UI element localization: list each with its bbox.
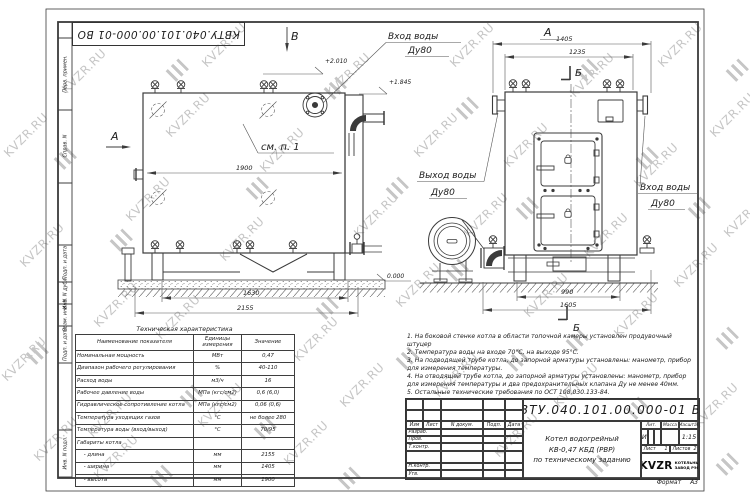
tech-col-header: Значение — [242, 335, 295, 351]
view-a-label: А — [543, 26, 552, 39]
tb-sheet-label: Лист — [644, 447, 656, 452]
view-b-mark: В — [285, 27, 298, 52]
tech-table-row: Расход водым3/ч16 — [76, 375, 295, 387]
door-lock-icon — [565, 155, 571, 163]
tech-table-cell: мм — [194, 450, 242, 462]
see-note-label: см. п. 1 — [261, 142, 300, 153]
view-a-mark: А — [106, 130, 131, 149]
door-lock-icon — [565, 209, 571, 217]
top-doc-number: КВТУ.040.101.00.000-01 ВО — [77, 28, 240, 40]
tech-table-cell: 0,06 (0,6) — [242, 400, 295, 412]
valve-icon — [177, 81, 185, 93]
boiler-side-view: 0.000 1900 1630 — [106, 27, 461, 317]
note-line: 1. На боковой стенке котла в области топ… — [407, 333, 698, 348]
tech-table-cell: 2155 — [242, 450, 295, 462]
valve-icon — [643, 236, 651, 248]
tech-table-cell: Диапазон рабочего регулирования — [76, 363, 194, 375]
dim-label: 1605 — [560, 301, 577, 309]
valve-icon — [151, 241, 159, 253]
tb-sheets-label: Листов — [673, 447, 691, 452]
view-b-label: В — [291, 30, 299, 43]
front-outlet-callout: Выход воды Ду80 — [417, 113, 498, 199]
drawing-sheet: KVZR.RUKVZR.RUKVZR.RUKVZR.RUKVZR.RUKVZR.… — [0, 0, 750, 500]
dim-label: 2155 — [237, 304, 254, 312]
tb-sheets-value: 2 — [693, 447, 696, 452]
valve-icon — [489, 236, 497, 248]
inlet-dn-label: Ду80 — [650, 199, 675, 209]
title-line: по техническому заданию — [533, 455, 630, 466]
title-line: КВ-0,47 КБД (РВР) — [549, 445, 615, 456]
tb-col-list: Лист — [423, 421, 441, 429]
tech-table-cell: Гидравлическое сопротивление котла — [76, 400, 194, 412]
tb-mass-header: Масса — [661, 421, 679, 429]
inlet-flange-right — [637, 96, 648, 114]
tech-table-cell: °С — [194, 412, 242, 424]
valve-icon — [233, 241, 241, 253]
tech-table-cell: 16 — [242, 375, 295, 387]
outlet-flange — [493, 96, 506, 114]
valve-icon — [246, 241, 254, 253]
elevation-label: +2.010 — [325, 58, 347, 65]
inlet-dn-label: Ду80 — [407, 46, 432, 56]
tb-row-approved: Утв. — [406, 470, 441, 479]
dim-1235: 1235 — [505, 48, 633, 90]
company-box: KVZR КОТЕЛЬНЫЙ ЗАВОД РЭП — [641, 453, 699, 479]
section-label: Б — [575, 68, 582, 79]
margin-label: Перв. примен. — [63, 55, 69, 93]
tech-table-row: Гидравлическое сопротивление котлаМПа (к… — [76, 400, 295, 412]
margin-label: Взам. инв. N — [63, 299, 69, 332]
tb-lit-header: Лит. — [641, 421, 661, 429]
tb-col-date: Дата — [505, 421, 523, 429]
tech-table-body: Номинальная мощностьМВт0,47Диапазон рабо… — [76, 351, 295, 487]
tech-table-cell: не более 280 — [242, 412, 295, 424]
boiler-front-view: 1405 1235 А Б — [417, 26, 698, 334]
elevation-top: +2.010 — [263, 58, 347, 74]
note-line: 3. На подводящей трубе котла, до запорно… — [407, 357, 698, 372]
tech-table-cell: Температура уходящих газов — [76, 412, 194, 424]
tb-row-checked: Пров. — [406, 436, 441, 443]
furnace-doors — [534, 133, 602, 251]
tech-table-row: Номинальная мощностьМВт0,47 — [76, 351, 295, 363]
company-line: ЗАВОД РЭП — [675, 466, 699, 471]
dim-label: 990 — [561, 288, 573, 296]
see-note-callout: см. п. 1 — [243, 124, 334, 153]
tech-table-cell: 0,47 — [242, 351, 295, 363]
inlet-label: Вход воды — [640, 183, 690, 193]
tech-table-cell: °С — [194, 425, 242, 437]
margin-label: Подп. и дата — [63, 246, 69, 280]
tech-table-row: Температура уходящих газов°Сне более 280 — [76, 412, 295, 424]
inlet-flange — [303, 93, 327, 117]
format-note: Формат А3 — [604, 479, 698, 486]
tech-table-cell: 0,6 (6,0) — [242, 388, 295, 400]
tech-table-cell: - высота — [76, 474, 194, 486]
elevation-mid: +1.845 — [359, 79, 411, 94]
tech-table-cell: МПа (кгс/см2) — [194, 400, 242, 412]
foundation — [118, 280, 385, 289]
dim-label: 1405 — [556, 35, 573, 43]
tech-table-cell — [242, 437, 295, 449]
title-block: Изм Лист N докум. Подп. Дата Разраб. Про… — [405, 398, 700, 480]
tech-table-cell: Номинальная мощность — [76, 351, 194, 363]
side-inlet-callout: Вход воды Ду80 — [323, 32, 461, 103]
rear-pipe — [349, 111, 384, 255]
margin-labels: Перв. примен. Справ. N Подп. и дата Инв.… — [63, 55, 69, 469]
valve-icon — [176, 241, 184, 253]
note-line: 2. Температура воды на входе 70°С, на вы… — [407, 349, 698, 357]
tb-row-ncontrol: Н.контр. — [406, 463, 441, 470]
tech-table-cell: Температура воды (вход/выход) — [76, 425, 194, 437]
tech-table-cell: МПа (кгс/см2) — [194, 388, 242, 400]
note-line: 4. На отводящей трубе котла, до запорной… — [407, 373, 698, 388]
tech-table-cell: мм — [194, 462, 242, 474]
tech-table-row: - длинамм2155 — [76, 450, 295, 462]
top-doc-number-stamp: КВТУ.040.101.00.000-01 ВО — [72, 22, 245, 46]
tb-scale-value: 1:15 — [679, 429, 699, 445]
tb-col-sign: Подп. — [483, 421, 505, 429]
outlet-label: Выход воды — [419, 171, 476, 181]
valve-icon — [522, 80, 530, 92]
valve-icon — [151, 81, 159, 93]
notes-list: 1. На боковой стенке котла в области топ… — [407, 333, 698, 397]
dim-label: 1235 — [569, 48, 586, 56]
doc-number: КВТУ.040.101.00.000-01 ВО — [523, 399, 699, 421]
tech-table-cell: - ширина — [76, 462, 194, 474]
tech-table-row: Рабочее давление водыМПа (кгс/см2)0,6 (6… — [76, 388, 295, 400]
tech-table-cell: 70/95 — [242, 425, 295, 437]
valve-icon — [509, 80, 517, 92]
valve-icon — [260, 81, 268, 93]
valve-icon — [289, 241, 297, 253]
front-inlet-callout: Вход воды Ду80 — [638, 116, 698, 210]
support-frame — [152, 253, 345, 280]
valve-icon — [269, 81, 277, 93]
format-label: Формат — [657, 479, 681, 486]
drawing-title: Котел водогрейный КВ-0,47 КБД (РВР) по т… — [523, 421, 641, 479]
note-line: 5. Остальные технические требования по О… — [407, 389, 698, 397]
company-name: КОТЕЛЬНЫЙ ЗАВОД РЭП — [675, 461, 699, 470]
format-value: А3 — [690, 479, 698, 486]
tech-table-cell: 40-110 — [242, 363, 295, 375]
tech-table-cell: Рабочее давление воды — [76, 388, 194, 400]
tb-row-developed: Разраб. — [406, 429, 441, 436]
tech-table-cell: 1900 — [242, 474, 295, 486]
tb-lit-value: И — [641, 429, 648, 445]
tech-table-title: Техническая характеристика — [75, 326, 294, 333]
tb-row-tcontrol: Т.контр. — [406, 443, 441, 451]
tech-table-row: - высотамм1900 — [76, 474, 295, 486]
tb-col-doc: N докум. — [441, 421, 483, 429]
tech-table-row: Габариты котла — [76, 437, 295, 449]
tech-table-cell: МВт — [194, 351, 242, 363]
elevation-label: +1.845 — [389, 79, 411, 86]
dim-1900: 1900 — [147, 164, 342, 175]
tech-table-cell: мм — [194, 474, 242, 486]
margin-label: Подп. и дата — [63, 327, 69, 361]
title-line: Котел водогрейный — [545, 434, 619, 445]
tech-table-row: Диапазон рабочего регулирования%40-110 — [76, 363, 295, 375]
tech-characteristics: Техническая характеристика Наименование … — [75, 326, 294, 487]
tech-table-cell: м3/ч — [194, 375, 242, 387]
margin-label: Справ. N — [63, 134, 69, 157]
valve-icon — [616, 80, 624, 92]
dim-label: 1900 — [236, 164, 253, 172]
tech-table-row: Температура воды (вход/выход)°С70/95 — [76, 425, 295, 437]
front-support — [508, 255, 635, 281]
tech-col-header: Единицы измерения — [194, 335, 242, 351]
tech-table-cell: 1405 — [242, 462, 295, 474]
tech-table: Наименование показателя Единицы измерени… — [75, 334, 295, 487]
tb-sheet-value: 1 — [664, 447, 667, 452]
view-a-label: А — [110, 130, 119, 143]
margin-label: Инв. N подл. — [63, 436, 69, 469]
elevation-zero-label: 0.000 — [387, 273, 404, 280]
tech-table-cell: Габариты котла — [76, 437, 194, 449]
valve-icon — [603, 80, 611, 92]
tech-table-row: - ширинамм1405 — [76, 462, 295, 474]
fan-duct — [481, 246, 504, 270]
tb-scale-header: Масштаб — [679, 421, 699, 429]
inlet-label: Вход воды — [388, 32, 438, 42]
inspection-hatch — [598, 100, 623, 122]
kvzr-logo-text: KVZR — [641, 460, 673, 472]
blower-fan — [429, 218, 485, 283]
tech-table-cell: - длина — [76, 450, 194, 462]
section-b-top: Б — [561, 66, 582, 80]
tech-table-cell — [194, 437, 242, 449]
tech-table-cell: Расход воды — [76, 375, 194, 387]
tech-table-cell: % — [194, 363, 242, 375]
dim-label: 1630 — [243, 289, 260, 297]
outlet-dn-label: Ду80 — [430, 188, 455, 198]
tb-col-izm: Изм — [406, 421, 423, 429]
tech-col-header: Наименование показателя — [76, 335, 194, 351]
